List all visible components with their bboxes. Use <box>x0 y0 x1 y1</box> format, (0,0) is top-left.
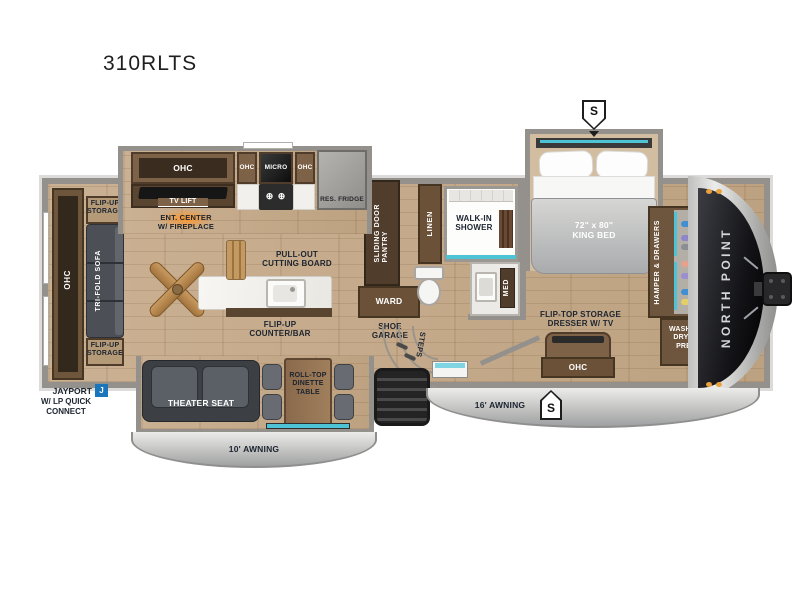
slide-marker-bed-arrow <box>589 131 599 137</box>
linen-label: LINEN <box>426 211 435 237</box>
island-bar-edge <box>226 308 332 317</box>
headboard-accent <box>540 140 648 143</box>
floorplan-title: 310RLTS <box>103 52 197 76</box>
hitch-bolt <box>781 295 785 299</box>
closet-accent <box>674 262 677 310</box>
toilet-bowl <box>417 278 441 306</box>
theater-seat-label: THEATER SEAT <box>142 398 260 408</box>
hitch-pin <box>762 272 792 306</box>
hitch-bolt <box>769 279 773 283</box>
shower-tile <box>449 190 513 202</box>
slide-marker-bed: S <box>582 100 606 130</box>
entry-steps <box>374 368 430 426</box>
brand-wrap: NORTH POINT <box>698 192 756 384</box>
dinette-label: ROLL-TOP DINETTE TABLE <box>284 372 332 397</box>
dinette-chair <box>262 364 282 390</box>
sofa-label-wrap: TRI-FOLD SOFA <box>92 228 106 334</box>
dinette-chair <box>262 394 282 420</box>
entry-door-window <box>435 363 465 368</box>
rear-ohc-label-wrap: OHC <box>58 230 78 330</box>
brand-label: NORTH POINT <box>720 227 734 348</box>
ohc-long-label: OHC <box>131 163 235 173</box>
dinette-chair <box>334 394 354 420</box>
hitch-bolt <box>769 295 773 299</box>
hamper-label-wrap: HAMPER & DRAWERS <box>650 210 666 314</box>
rear-window <box>43 212 49 284</box>
marker-light-icon <box>716 189 722 194</box>
linen-label-wrap: LINEN <box>418 186 442 262</box>
dresser-tv-icon <box>552 336 604 343</box>
counter-right <box>293 184 315 210</box>
pantry-label: SLIDING DOOR PANTRY <box>374 204 390 263</box>
dinette-chair <box>334 364 354 390</box>
jayport-sub-label: W/ LP QUICK CONNECT <box>24 397 108 416</box>
pull-out-cutting-board-label: PULL-OUT CUTTING BOARD <box>242 250 352 269</box>
living-slide-window <box>266 423 350 429</box>
jayport-label: JAYPORT <box>53 386 92 396</box>
shower-label: WALK-IN SHOWER <box>448 214 500 233</box>
ohc-left-label: OHC <box>237 164 257 172</box>
rear-ohc-label: OHC <box>63 270 72 290</box>
shower-shelf <box>499 210 513 248</box>
marker-light-icon <box>716 382 722 387</box>
micro-label: MICRO <box>259 164 293 172</box>
hitch-bolt <box>781 279 785 283</box>
rear-window <box>43 296 49 366</box>
flip-top-dresser-label: FLIP-TOP STORAGE DRESSER W/ TV <box>523 310 638 329</box>
jayport-callout: JAYPORT J W/ LP QUICK CONNECT <box>24 384 108 416</box>
res-fridge-label: RES. FRIDGE <box>315 196 369 204</box>
ward-label: WARD <box>358 296 420 306</box>
med-label: MED <box>503 279 511 296</box>
shower-glass <box>446 255 516 259</box>
stove-burners-icon: ⊕ ⊕ <box>259 191 293 202</box>
bath-sink-basin <box>479 278 493 296</box>
marker-light-icon <box>706 189 712 194</box>
jayport-badge: J <box>95 384 108 397</box>
awning-10-label: 10' AWNING <box>131 444 377 454</box>
sofa-label: TRI-FOLD SOFA <box>95 250 103 311</box>
kitchen-slide-window <box>243 142 293 149</box>
sofa-seat-edge <box>115 227 123 335</box>
flip-up-storage-bottom-label: FLIP-UP STORAGE <box>80 342 130 359</box>
slide-marker-awning-face: S <box>542 392 560 418</box>
marker-light-icon <box>706 382 712 387</box>
ohc-right-label: OHC <box>295 164 315 172</box>
floorplan-canvas: 310RLTS OHC FLIP-UP STORAGE FLIP-UP STOR… <box>0 0 800 600</box>
awning-16-label: 16' AWNING <box>450 400 550 410</box>
med-label-wrap: MED <box>500 268 515 308</box>
ent-center-label: ENT. CENTER W/ FIREPLACE <box>134 214 238 232</box>
flip-up-counter-label: FLIP-UP COUNTER/BAR <box>225 320 335 339</box>
closet-accent <box>674 212 677 256</box>
king-bed-label: 72" x 80" KING BED <box>556 220 632 240</box>
slide-marker-bed-face: S <box>584 102 604 128</box>
sink-faucet-icon <box>290 287 295 292</box>
counter-left <box>237 184 259 210</box>
fan-hub <box>172 284 183 295</box>
bedroom-ohc-label: OHC <box>541 363 615 372</box>
hamper-label: HAMPER & DRAWERS <box>654 220 662 305</box>
kitchen-island <box>198 276 332 310</box>
